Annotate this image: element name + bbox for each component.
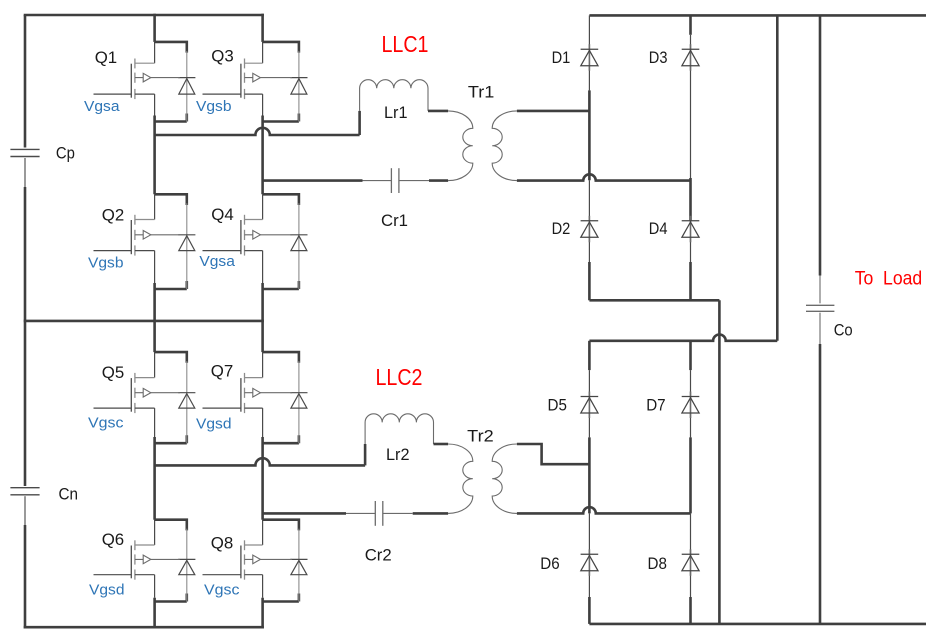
svg-text:LLC2: LLC2	[376, 364, 423, 390]
svg-text:Vgsa: Vgsa	[84, 98, 120, 115]
svg-text:Q6: Q6	[102, 530, 125, 549]
svg-text:D1: D1	[552, 48, 571, 67]
svg-text:LLC1: LLC1	[382, 31, 429, 57]
svg-text:D3: D3	[649, 48, 668, 67]
svg-text:Cn: Cn	[59, 485, 79, 504]
svg-text:Q2: Q2	[102, 206, 125, 225]
svg-text:D2: D2	[552, 219, 571, 238]
svg-text:Lr1: Lr1	[384, 103, 408, 122]
svg-text:Vgsc: Vgsc	[204, 582, 240, 599]
svg-text:D6: D6	[540, 554, 559, 573]
svg-text:Cp: Cp	[56, 144, 75, 163]
svg-text:D8: D8	[648, 554, 667, 573]
svg-text:Tr1: Tr1	[468, 83, 495, 102]
svg-text:Vgsc: Vgsc	[88, 415, 124, 432]
svg-text:D4: D4	[649, 219, 668, 238]
svg-text:Q5: Q5	[102, 363, 125, 382]
svg-text:D5: D5	[548, 396, 567, 415]
svg-text:Vgsd: Vgsd	[89, 582, 125, 599]
svg-text:Vgsd: Vgsd	[196, 415, 232, 432]
svg-text:Lr2: Lr2	[386, 445, 410, 464]
svg-text:To Load: To Load	[855, 269, 923, 290]
svg-text:D7: D7	[646, 396, 665, 415]
svg-text:Q3: Q3	[211, 47, 234, 66]
svg-text:Vgsb: Vgsb	[196, 98, 232, 115]
svg-text:Vgsa: Vgsa	[199, 253, 235, 270]
svg-text:Q1: Q1	[95, 48, 118, 67]
svg-text:Cr2: Cr2	[365, 546, 392, 565]
svg-text:Q7: Q7	[211, 361, 234, 380]
svg-text:Tr2: Tr2	[467, 427, 494, 446]
svg-text:Q4: Q4	[211, 205, 234, 224]
svg-text:Cr1: Cr1	[381, 211, 408, 230]
svg-text:Co: Co	[834, 321, 853, 340]
svg-text:Vgsb: Vgsb	[88, 255, 124, 272]
svg-text:Q8: Q8	[211, 534, 234, 553]
